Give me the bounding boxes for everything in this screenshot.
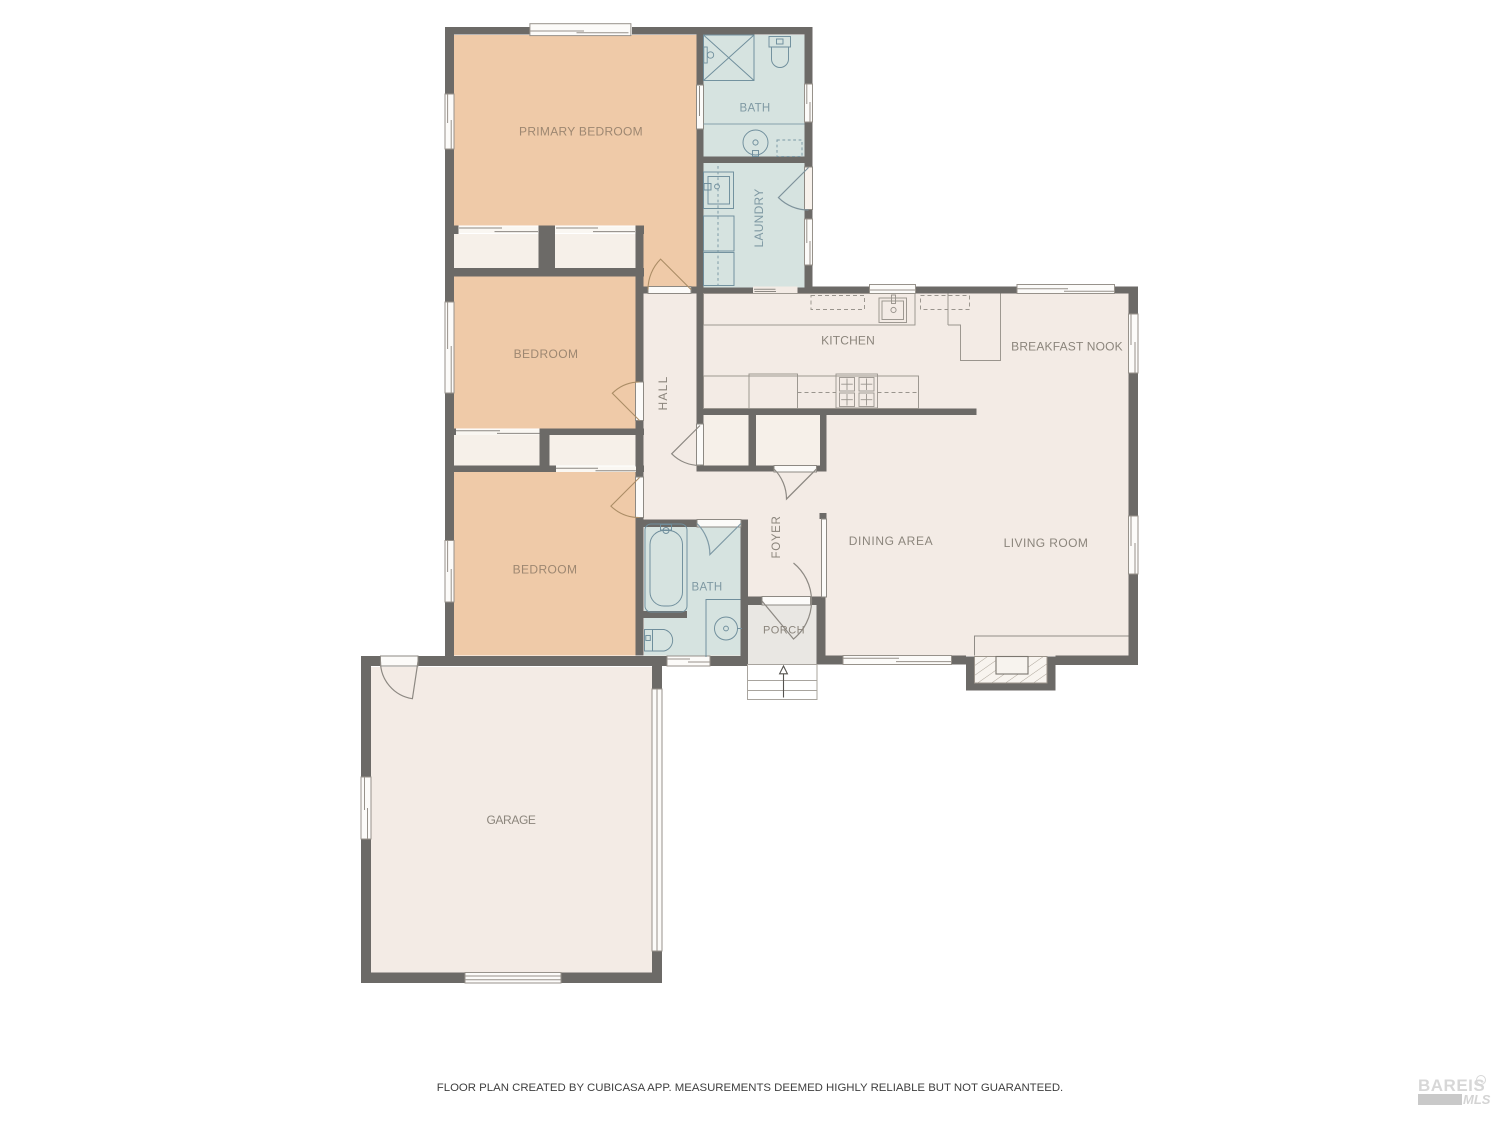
svg-text:HALL: HALL (656, 375, 670, 410)
svg-text:BEDROOM: BEDROOM (514, 347, 579, 361)
svg-text:BATH: BATH (691, 582, 722, 594)
svg-text:BATH: BATH (739, 103, 770, 115)
svg-text:MLS: MLS (1463, 1092, 1491, 1107)
svg-text:LIVING ROOM: LIVING ROOM (1004, 536, 1089, 550)
svg-text:BREAKFAST NOOK: BREAKFAST NOOK (1011, 340, 1123, 354)
svg-text:PRIMARY BEDROOM: PRIMARY BEDROOM (519, 125, 643, 139)
svg-text:FLOOR PLAN CREATED BY CUBICASA: FLOOR PLAN CREATED BY CUBICASA APP. MEAS… (437, 1082, 1063, 1094)
svg-text:KITCHEN: KITCHEN (821, 334, 875, 348)
svg-text:PORCH: PORCH (763, 625, 805, 637)
svg-text:GARAGE: GARAGE (486, 813, 535, 827)
svg-text:LAUNDRY: LAUNDRY (752, 188, 766, 247)
svg-text:DINING AREA: DINING AREA (849, 534, 934, 548)
svg-text:BEDROOM: BEDROOM (513, 563, 578, 577)
svg-text:FOYER: FOYER (771, 516, 783, 559)
